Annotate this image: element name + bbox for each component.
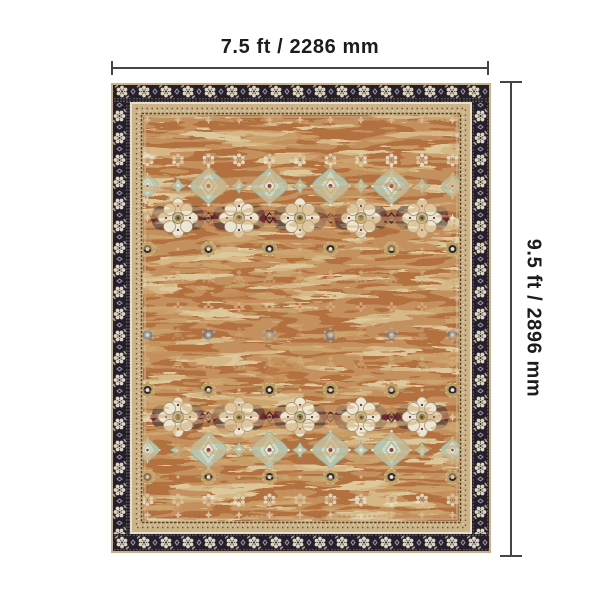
width-dimension-tick-left: [111, 61, 113, 75]
height-dimension-label: 9.5 ft / 2896 mm: [522, 239, 545, 398]
rug-product-image: [111, 83, 491, 553]
height-dimension-tick-top: [500, 81, 522, 83]
product-image-canvas: 7.5 ft / 2286 mm 9.5 ft / 2896 mm: [0, 0, 600, 600]
width-dimension-label: 7.5 ft / 2286 mm: [221, 36, 380, 59]
rug-motif-rows: [134, 115, 465, 521]
height-dimension-line: [510, 82, 512, 556]
width-dimension-tick-right: [487, 61, 489, 75]
width-dimension-line: [112, 67, 488, 69]
height-dimension-tick-bottom: [500, 555, 522, 557]
